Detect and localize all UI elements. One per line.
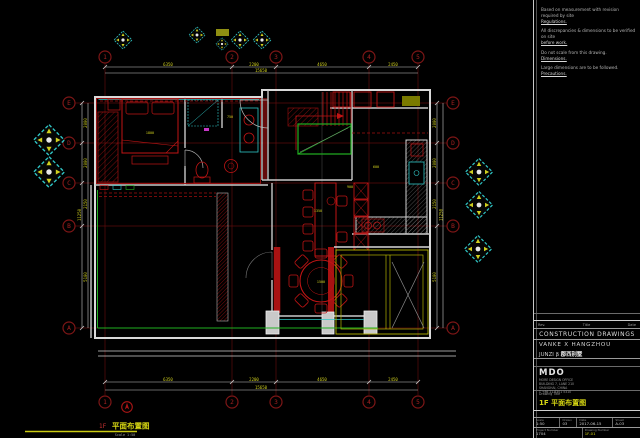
grid-col-5b: 5	[416, 399, 420, 406]
grid-col-1: 1	[103, 54, 107, 61]
north-arrow-needle	[125, 403, 129, 410]
dim-left-1: 2000	[83, 118, 88, 128]
dim-right-1: 2000	[432, 118, 437, 128]
grid-col-1b: 1	[103, 399, 107, 406]
grid-row-c: C	[67, 180, 71, 187]
keynote-tag	[216, 29, 229, 36]
accessory-mark	[204, 128, 209, 131]
stair-void-diagonal2	[300, 128, 348, 152]
dim-bottom-4: 2450	[388, 377, 398, 382]
field-label: Date	[628, 323, 636, 327]
closet-unit	[354, 92, 371, 107]
dim-top-2: 2200	[249, 62, 259, 67]
master-bedroom	[98, 99, 203, 182]
wall-fill	[274, 247, 281, 313]
note-item: All discrepancies & dimensions to be ver…	[541, 28, 637, 46]
ramp-diagonals	[392, 262, 424, 328]
grid-row-e2: E	[451, 100, 455, 107]
dim-top-4: 2450	[388, 62, 398, 67]
cad-viewport: 6350 2200 4650 2450 15650 6350 2200 4650…	[0, 0, 640, 438]
elevation-marker-icon	[216, 38, 229, 51]
bed-bench	[132, 156, 168, 164]
dim-bottom-1: 6350	[163, 377, 173, 382]
garage-border-inner	[341, 255, 423, 329]
note-item: Large dimensions are to be followed. Pre…	[541, 65, 637, 77]
dim-right-3: 2150	[432, 199, 437, 209]
company-block: MDO MORE DESIGN OFFICE BUILDING 7, LANE …	[534, 366, 640, 390]
elevation-marker-icon	[466, 192, 493, 219]
dim-top-3: 4650	[317, 62, 327, 67]
note-line: Large dimensions are to be followed.	[541, 65, 618, 70]
bed-blanket-line	[122, 140, 178, 153]
pillow	[126, 102, 148, 114]
dim-left-overall: 11250	[77, 208, 82, 221]
dining-area	[246, 183, 368, 313]
field-label: Title	[583, 323, 591, 327]
elevation-marker-icon	[34, 125, 65, 156]
grid-row-a2: A	[451, 325, 455, 332]
note-line-underlined: Precautions.	[541, 71, 567, 76]
grid-row-d: D	[67, 140, 71, 147]
note-line: All discrepancies & dimensions to be ver…	[541, 28, 635, 39]
fields-row-2: Project Number 1704 Drawing Number 1F-01	[534, 427, 640, 438]
wall-fill	[263, 98, 267, 179]
grid-col-5: 5	[416, 54, 420, 61]
field-value: 2017-06-15	[579, 422, 610, 427]
chair	[337, 232, 347, 242]
grid-col-2b: 2	[230, 399, 234, 406]
divider	[534, 358, 640, 366]
finish-tag	[113, 186, 121, 190]
note-line-underlined: Dimensions.	[541, 56, 567, 61]
grid-row-d2: D	[451, 140, 455, 147]
dim-top-overall: 15650	[255, 68, 268, 73]
closet-unit	[377, 92, 394, 107]
field-drawing-number: Drawing Number 1F-01	[582, 428, 640, 438]
dim-left-3: 2150	[83, 199, 88, 209]
grid-col-4: 4	[367, 54, 371, 61]
door-swing	[185, 150, 203, 168]
column	[266, 311, 279, 334]
pillow	[152, 102, 174, 114]
grid-row-c2: C	[451, 180, 455, 187]
fields-row-1: Scale 1:50 Drawn 03 Date 2017-06-15 Shee…	[534, 417, 640, 427]
appliance-tag	[402, 96, 420, 106]
finish-tag	[100, 186, 108, 190]
finish-tag	[126, 186, 134, 190]
grid-col-3: 3	[274, 54, 278, 61]
dim-bottom-3: 4650	[317, 377, 327, 382]
field-drawn: Drawn 03	[559, 418, 576, 427]
project-sub: JUNZI β	[539, 352, 559, 358]
plan-dim-table: 1500	[317, 280, 325, 284]
footer-scale: Scale 1:50	[115, 433, 135, 437]
divider	[534, 313, 640, 320]
elevation-marker-icon	[466, 159, 493, 186]
field-sheet: Sheet A-03	[612, 418, 640, 427]
washer	[225, 160, 238, 173]
plan-dim-island: 1350	[314, 209, 322, 213]
project-sub-cn: 郡西别墅	[561, 352, 583, 358]
grid-row-b: B	[67, 223, 71, 230]
garage-border-outer	[336, 250, 428, 334]
island-table	[315, 183, 336, 256]
grid-row-a: A	[67, 325, 71, 332]
elevation-marker-icon	[189, 27, 205, 43]
wardrobe	[98, 112, 118, 182]
footer-drawing-title: 平面布置图	[112, 421, 150, 431]
plan-dim-bath: 750	[227, 115, 233, 119]
project-name: VANKE X HANGZHOU	[539, 342, 635, 348]
dim-bottom-2: 2200	[249, 377, 259, 382]
grid-col-4b: 4	[367, 399, 371, 406]
terrace-edge	[98, 351, 456, 356]
divider	[534, 410, 640, 417]
column	[322, 312, 334, 334]
project-block: VANKE X HANGZHOU JUNZI β 郡西别墅	[534, 339, 640, 358]
washer-drum	[228, 163, 234, 169]
chair	[303, 207, 313, 217]
doc-type: CONSTRUCTION DRAWINGS	[534, 328, 640, 339]
field-value: 03	[562, 422, 574, 427]
grid-col-3b: 3	[274, 399, 278, 406]
revision-header: Rev. Title Date	[534, 320, 640, 328]
pendant-symbol	[327, 197, 335, 205]
title-block-main: Rev. Title Date CONSTRUCTION DRAWINGS VA…	[534, 313, 640, 438]
field-scale: Scale 1:50	[534, 418, 559, 427]
grid-col-2: 2	[230, 54, 234, 61]
field-label: Rev.	[538, 323, 545, 327]
vanity	[240, 108, 258, 152]
closet-unit	[333, 92, 350, 107]
dim-left-4: 5100	[83, 272, 88, 282]
field-value: 1F-01	[585, 432, 638, 437]
general-notes: Based on measurement with revision requi…	[541, 7, 637, 80]
wall-fill	[328, 247, 334, 315]
field-value: 1:50	[536, 422, 557, 427]
stair-landing	[288, 108, 318, 126]
elevation-marker-icon	[253, 31, 271, 49]
footer-floor-prefix: 1F	[99, 423, 107, 430]
dim-top-1: 6350	[163, 62, 173, 67]
plan-dim-bed: 1800	[146, 131, 154, 135]
sheet-footer: 1F 平面布置图 Scale 1:50	[25, 402, 150, 437]
chair	[303, 224, 313, 234]
plan-dim-kitchen: 600	[373, 165, 379, 169]
shower-diagonal	[188, 100, 218, 126]
note-item: Do not scale from this drawing. Dimensio…	[541, 50, 637, 62]
garage-room	[334, 247, 430, 334]
plan-dim-cabinet: 900	[347, 185, 353, 189]
chair	[303, 190, 313, 200]
drawing-title-label: Drawing Title	[539, 392, 635, 396]
note-item: Based on measurement with revision requi…	[541, 7, 637, 25]
staircase	[288, 92, 351, 154]
drawing-title-block: Drawing Title 1F 平面布置图	[534, 390, 640, 410]
title-block: Based on measurement with revision requi…	[533, 0, 640, 438]
toilet	[196, 162, 208, 178]
note-line: Based on measurement with revision requi…	[541, 7, 619, 18]
drawing-title: 1F 平面布置图	[539, 398, 635, 408]
kitchen	[356, 140, 427, 234]
chair	[303, 241, 313, 251]
elevation-marker-icon	[465, 236, 492, 263]
basin	[244, 133, 254, 143]
dim-right-2: 2000	[432, 158, 437, 168]
closet-row	[333, 92, 420, 107]
field-project-number: Project Number 1704	[534, 428, 582, 438]
column	[364, 311, 377, 334]
field-value: 1704	[536, 432, 580, 437]
elevation-marker-icon	[114, 31, 132, 49]
dim-left-2: 2000	[83, 158, 88, 168]
note-line: Do not scale from this drawing.	[541, 50, 607, 55]
note-line-underlined: before work.	[541, 40, 567, 45]
dim-right-4: 5100	[432, 272, 437, 282]
door-swing	[246, 252, 272, 278]
elevation-marker-icon	[231, 31, 249, 49]
bathroom	[188, 100, 268, 183]
field-date: Date 2017-06-15	[576, 418, 612, 427]
hatched-wall	[217, 193, 228, 321]
stair-treads	[323, 92, 351, 126]
nightstand	[108, 99, 120, 110]
dim-right-overall: 11250	[439, 208, 444, 221]
grid-row-b2: B	[451, 223, 455, 230]
elevation-marker-icon	[34, 157, 65, 188]
company-logo: MDO	[539, 368, 635, 378]
grid-row-e: E	[67, 100, 71, 107]
field-value: A-03	[615, 422, 638, 427]
sink	[409, 162, 424, 184]
dim-bottom-overall: 15650	[255, 385, 268, 390]
note-line-underlined: Regulations.	[541, 19, 567, 24]
garage-partition	[386, 255, 390, 329]
chair	[337, 196, 347, 206]
